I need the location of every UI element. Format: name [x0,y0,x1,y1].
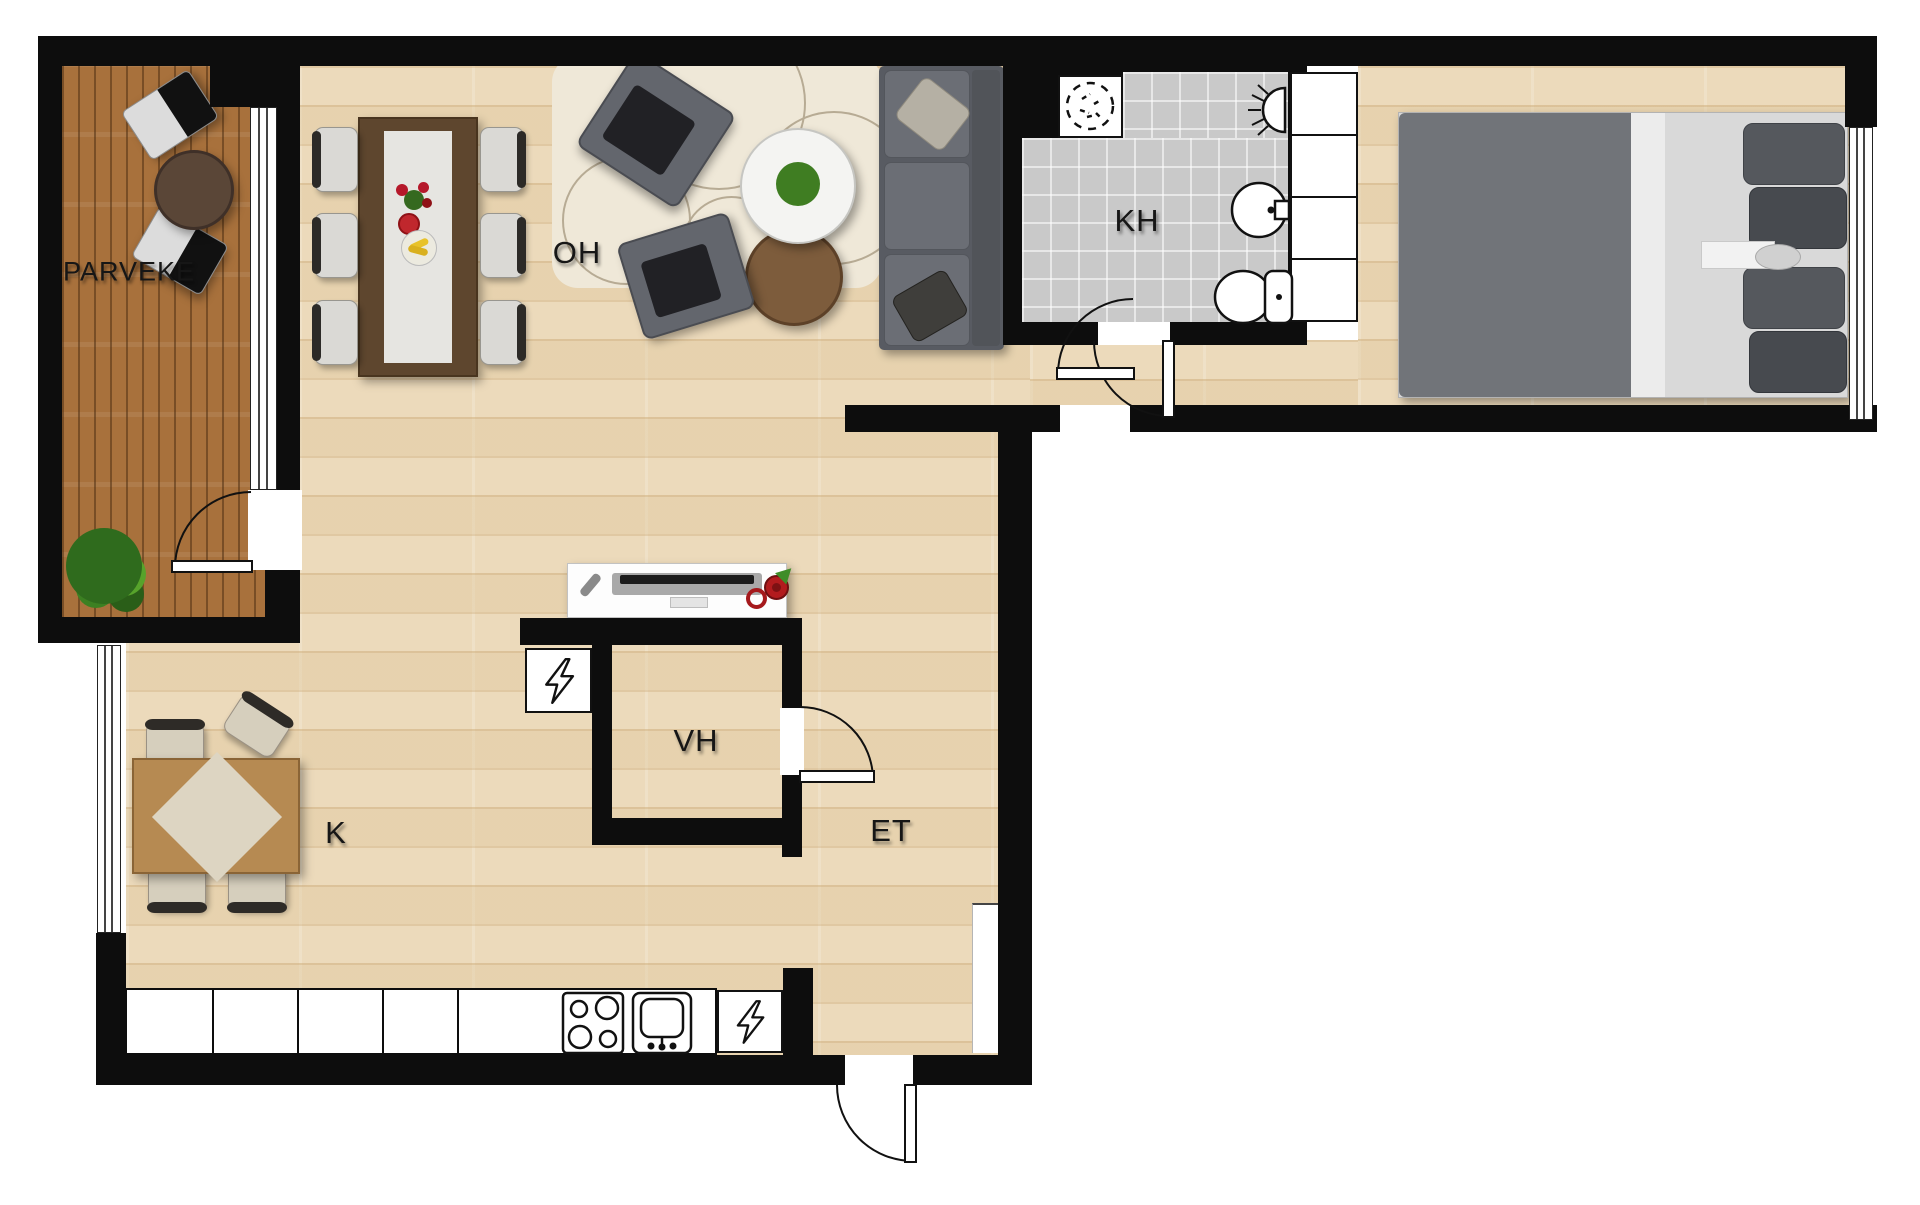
sofa [879,66,1004,350]
bed-pillow [1743,123,1845,185]
balcony-plant [66,528,142,604]
room-label-living-room: OH [553,235,602,271]
wall-balcony-bottom [38,617,300,643]
armchair-seat [640,243,722,318]
room-label-balcony: PARVEKE [63,257,195,288]
closet-wall-left [592,645,612,845]
window-glass-line [266,108,268,489]
bed-blanket [1399,113,1633,397]
bed-tray-item [1755,244,1801,270]
balcony-table [154,150,234,230]
bed-pillow [1749,331,1847,393]
window-glass-line [1856,128,1858,419]
lightning-bolt-icon [539,655,579,707]
sofa-backrest [972,70,1000,346]
wall-corridor-bedroom [1130,405,1877,432]
tv-stand [670,597,708,608]
room-label-entry-hall: ET [870,813,912,849]
window-glass-line [1863,128,1865,419]
counter-divider [457,990,459,1053]
tv [612,573,762,595]
bathroom-tiles [1123,72,1288,138]
bed-sheet-fold [1631,113,1665,397]
window-glass-line [258,108,260,489]
bathroom-cabinet [1290,258,1358,322]
chair-back [227,902,287,913]
bed-pillow [1743,267,1845,329]
sofa-cushion [884,162,970,250]
tablecloth [152,752,282,882]
counter-divider [382,990,384,1053]
lightning-bolt-icon [731,997,769,1047]
bathroom-cabinet [1290,134,1358,198]
closet-wall-right-lower [782,775,802,857]
dining-chair [314,213,358,278]
counter-divider [297,990,299,1053]
fruit-plate [401,230,437,266]
double-bed [1398,112,1848,398]
bathroom-cabinet [1290,72,1358,136]
chair-back [312,217,321,274]
chair-back [517,304,526,361]
balcony-door-threshold [248,490,302,570]
washing-machine-reservation [1058,75,1123,138]
room-label-bathroom: KH [1114,203,1159,239]
wall-entry-stub [783,968,813,1085]
closet-wall-right-upper [782,645,802,708]
bedroom-door-threshold [1060,405,1130,432]
chair-back [145,719,205,730]
wall-hall-right [998,405,1032,1085]
chair-back [517,217,526,274]
balcony-window [250,107,277,490]
room-label-kitchen: K [325,815,347,851]
counter-divider [212,990,214,1053]
chair-back [312,131,321,188]
entry-door-leaf [905,1085,916,1162]
dining-chair [314,300,358,365]
chair-back [312,304,321,361]
closet-wall-top [520,618,802,645]
washing-machine-icon [1060,77,1120,135]
remote-control [579,572,603,598]
floor-plan: PARVEKE OH KH VH ET K [0,0,1920,1205]
wall-corridor-a [845,405,1060,432]
bedroom-window [1849,127,1873,420]
dining-chair [480,213,524,278]
window-glass-line [111,646,113,932]
electrical-panel [717,990,783,1053]
kitchen-window [97,645,121,933]
room-label-closet: VH [673,723,718,759]
corridor-floor [1030,340,1370,412]
chair-back [517,131,526,188]
wall-top [38,36,1877,66]
hall-wardrobe [972,903,998,1053]
entry-door-arc [837,1085,913,1161]
kitchen-table [132,758,300,874]
chair-back [147,902,207,913]
bathroom-cabinet [1290,196,1358,260]
bed-pillow [1749,187,1847,249]
kitchen-counter [125,988,717,1055]
bathroom-door-threshold [1098,318,1170,345]
armchair-seat [601,84,696,177]
window-glass-line [104,646,106,932]
dining-chair [480,127,524,192]
wall-right-corner [1845,36,1877,127]
wall-balcony-left [38,36,62,643]
dining-chair [480,300,524,365]
entry-door-threshold [845,1055,913,1085]
flower-decoration [396,182,436,216]
wall-balcony-divider-top [210,66,300,107]
electrical-panel [525,648,592,713]
closet-wall-bottom [592,818,802,845]
tv-sideboard [567,563,787,618]
closet-door-threshold [780,708,804,775]
wall-bottom-left [96,1055,845,1085]
dining-chair [314,127,358,192]
potted-plant [776,162,820,206]
tv-screen [620,575,754,584]
